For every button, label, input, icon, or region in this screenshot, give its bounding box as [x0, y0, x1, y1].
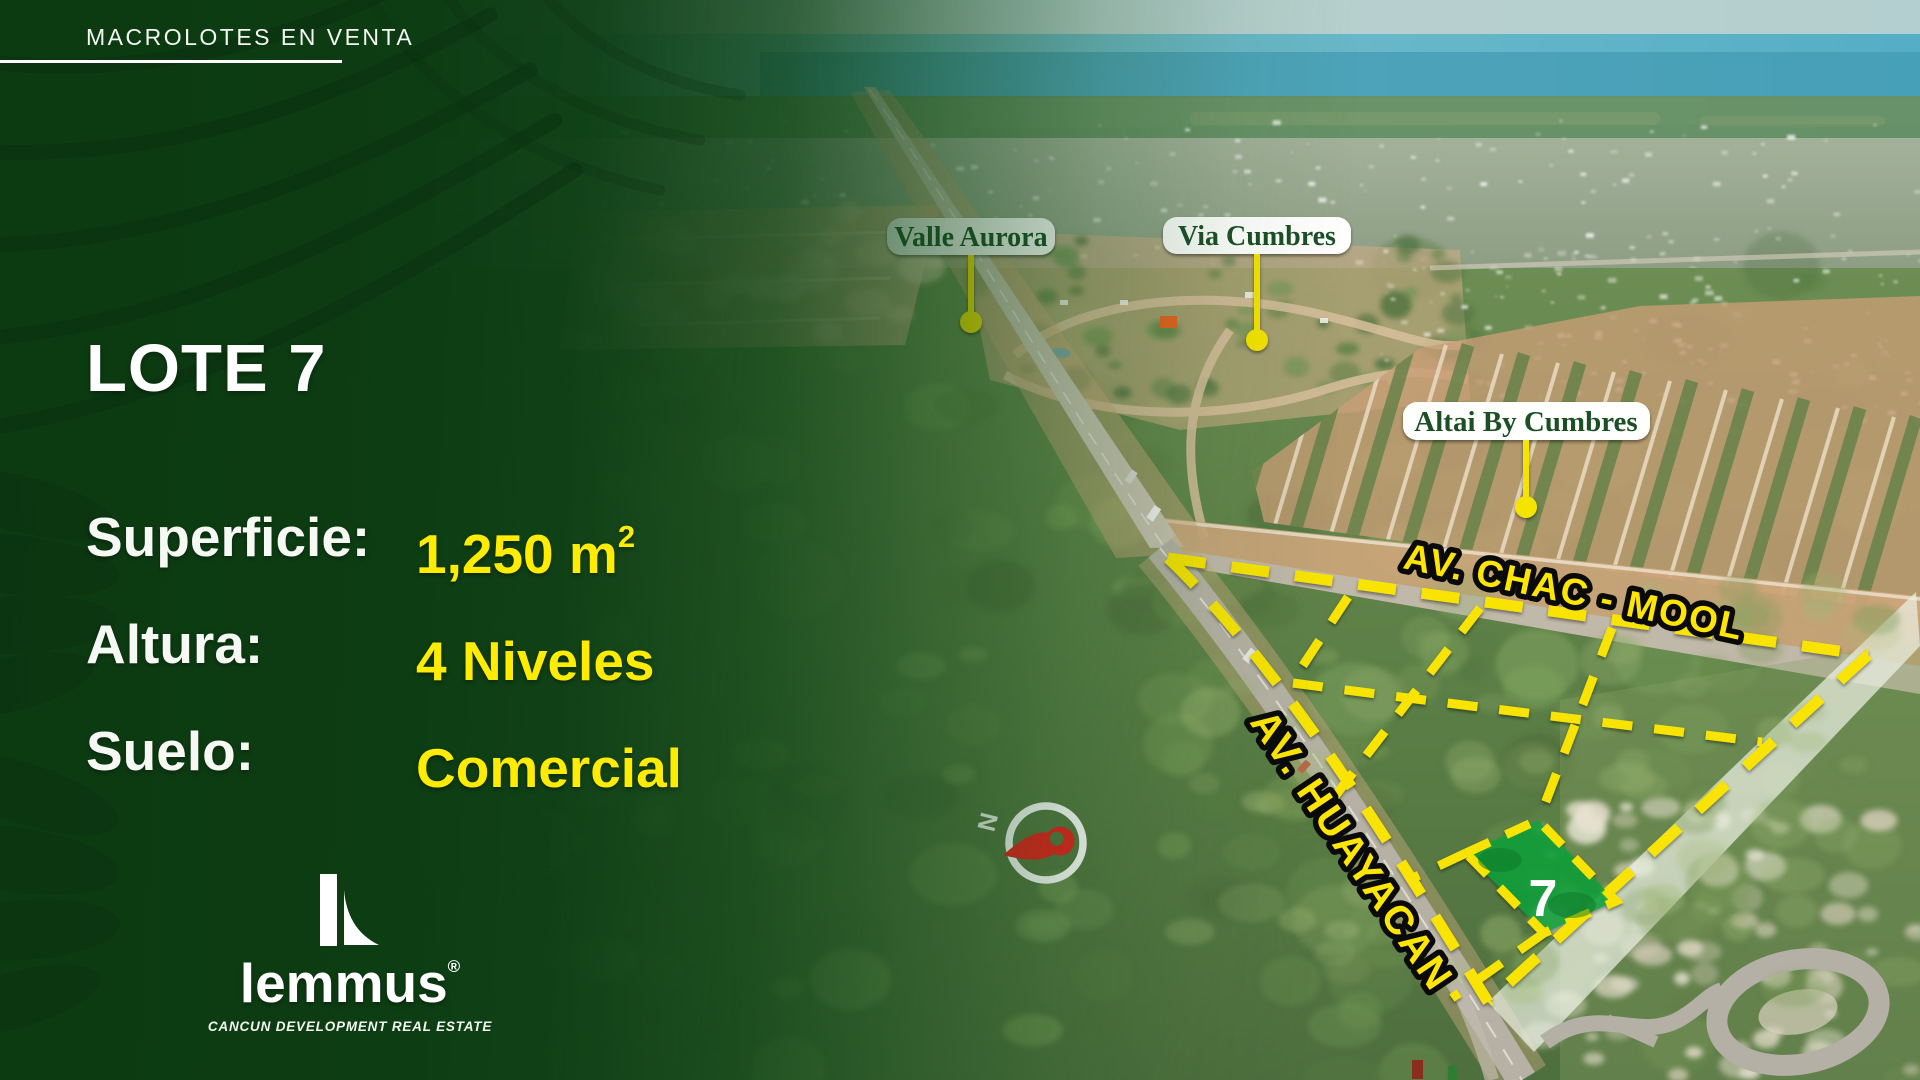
spec-label-altura: Altura: [86, 599, 416, 706]
lot-title: LOTE 7 [86, 330, 327, 407]
macrolote-flyer: 7 AV. CHAC - MOOL AV. HUAYACAN Valle Aur… [0, 0, 1920, 1080]
page-kicker: MACROLOTES EN VENTA [86, 24, 414, 51]
spec-value-text: 1,250 m [416, 523, 618, 585]
brand-tagline: CANCUN DEVELOPMENT REAL ESTATE [204, 1020, 496, 1034]
spec-value-sup: 2 [618, 519, 635, 554]
spec-label-superficie: Superficie: [86, 492, 416, 599]
spec-value-superficie: 1,250 m2 [416, 492, 682, 599]
spec-label-suelo: Suelo: [86, 706, 416, 813]
kicker-underline [0, 60, 342, 63]
lemmus-logo-icon [320, 872, 380, 948]
registered-mark: ® [448, 957, 461, 976]
spec-value-altura: 4 Niveles [416, 599, 682, 706]
spec-value-suelo: Comercial [416, 706, 682, 813]
brand-name: lemmus [240, 952, 448, 1014]
spec-list: Superficie: 1,250 m2 Altura: 4 Niveles S… [86, 492, 682, 813]
spec-value-text: 4 Niveles [416, 630, 655, 692]
lemmus-logo: lemmus® CANCUN DEVELOPMENT REAL ESTATE [204, 872, 496, 1034]
spec-value-text: Comercial [416, 737, 682, 799]
